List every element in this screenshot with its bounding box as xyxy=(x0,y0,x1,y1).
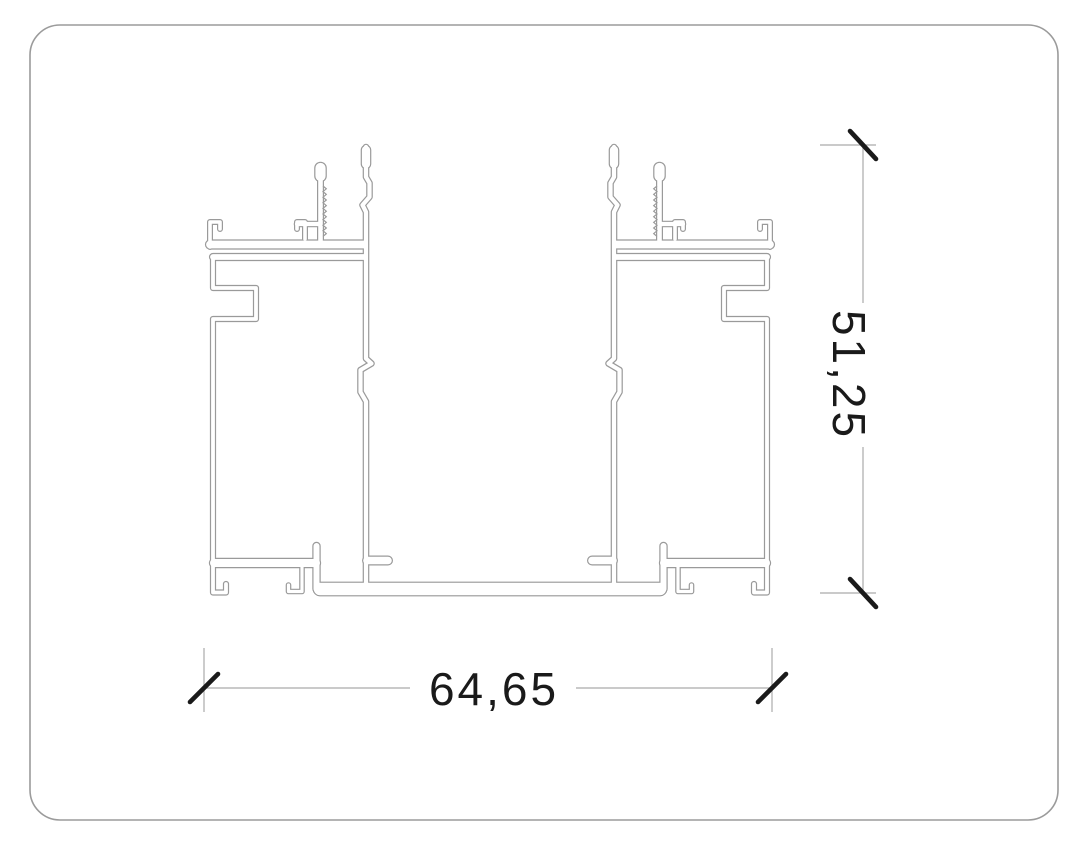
height-dimension-label: 51,25 xyxy=(823,310,875,440)
drawing-page: 64,65 51,25 xyxy=(0,0,1088,846)
profile-right-half-hollow xyxy=(320,147,770,593)
width-dimension-label: 64,65 xyxy=(429,663,559,715)
dimension-ticks xyxy=(190,131,876,702)
dimension-labels: 64,65 51,25 xyxy=(429,310,875,715)
profile-left-half-outline xyxy=(210,147,660,593)
technical-drawing: 64,65 51,25 xyxy=(0,0,1088,846)
profile-right-half-outline xyxy=(320,147,770,593)
profile-left-half-hollow xyxy=(210,147,660,593)
